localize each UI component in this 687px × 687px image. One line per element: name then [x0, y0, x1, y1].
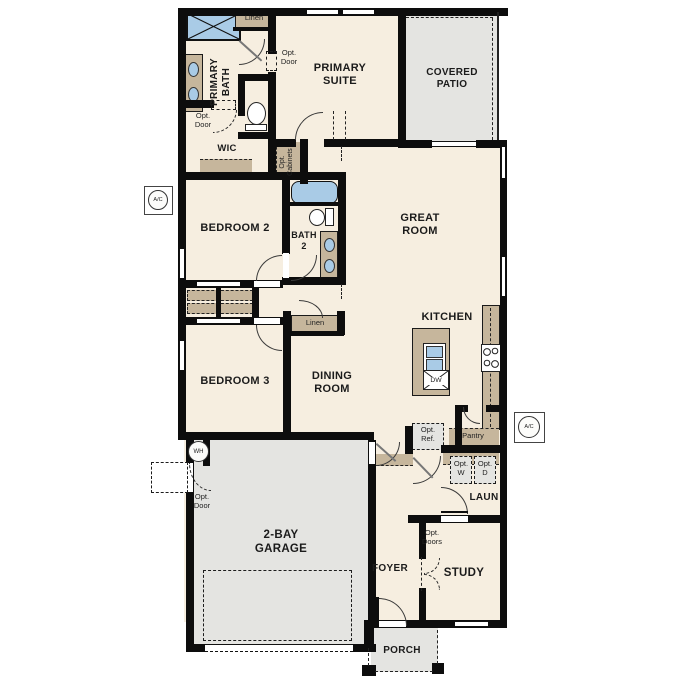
wall — [283, 311, 291, 432]
ac-icon: A/C — [148, 190, 168, 210]
wall — [364, 628, 374, 650]
room-label-kitchen: KITCHEN — [412, 311, 482, 324]
wall — [300, 139, 308, 184]
room-label-covered-patio: COVERED PATIO — [414, 67, 490, 91]
label-linen-top: Linen — [237, 14, 271, 23]
label-opt-ref: Opt. Ref. — [412, 426, 444, 443]
room-label-bedroom2: BEDROOM 2 — [188, 222, 282, 235]
door-opening — [283, 253, 289, 278]
garage-door-dashed — [205, 650, 353, 652]
room-label-wic: WIC — [205, 143, 249, 155]
room-label-garage: 2-BAY GARAGE — [244, 528, 318, 556]
closet-door-opening — [197, 281, 240, 287]
wall — [238, 132, 276, 139]
wall — [500, 140, 507, 628]
room-label-study: STUDY — [434, 566, 494, 580]
window — [455, 621, 488, 627]
label-opt-washer: Opt. W — [450, 460, 472, 477]
primary-toilet-bowl — [247, 102, 266, 125]
label-opt-dryer: Opt. D — [474, 460, 496, 477]
primary-toilet-tank — [245, 124, 267, 131]
window — [501, 147, 506, 178]
label-linen-hall: Linen — [293, 319, 337, 328]
bath2-sink-1 — [324, 238, 335, 252]
wall — [288, 202, 340, 206]
floor-plan: DW — [0, 0, 687, 687]
label-opt-door-bath: Opt. Door — [275, 49, 303, 66]
wic-shelf — [200, 159, 252, 172]
water-heater-icon: WH — [188, 441, 209, 462]
label-opt-doors-study: Opt. Doors — [417, 529, 447, 546]
label-opt-door-wic: Opt. Door — [188, 112, 218, 129]
wall — [268, 72, 276, 180]
wall — [398, 8, 406, 148]
patio-slider — [432, 141, 476, 147]
bath2-sink-2 — [324, 259, 335, 273]
primary-sink-1 — [188, 62, 199, 77]
wall — [286, 331, 344, 336]
wall — [178, 432, 374, 440]
wall — [486, 405, 500, 412]
porch-dashed-edge — [375, 670, 433, 672]
room-label-bath2: BATH 2 — [290, 230, 318, 252]
room-label-primary-suite: PRIMARY SUITE — [306, 62, 374, 89]
room-label-foyer: FOYER — [368, 563, 412, 575]
wall — [338, 172, 346, 285]
room-label-laundry: LAUN — [462, 492, 506, 504]
door-opening — [369, 442, 375, 464]
label-pantry: Pantry — [447, 432, 499, 441]
porch-dashed-edge — [368, 648, 370, 666]
opening-mark — [341, 146, 343, 161]
wall — [419, 588, 426, 621]
tub — [291, 181, 338, 204]
opt-door-dashed — [151, 462, 188, 493]
wall — [432, 663, 444, 674]
closet-door-opening — [197, 318, 240, 324]
wall — [368, 440, 376, 622]
wall — [178, 8, 186, 440]
porch-dashed-edge — [436, 630, 438, 664]
bath2-toilet-bowl — [309, 209, 325, 226]
wall — [398, 140, 432, 148]
window — [307, 9, 338, 15]
label-opt-cabinets: Opt. Cabinets — [279, 140, 297, 184]
wall — [216, 288, 221, 317]
wall — [178, 172, 346, 180]
wall — [233, 27, 275, 31]
window — [179, 341, 185, 370]
cooktop — [481, 344, 501, 372]
room-label-dining-room: DINING ROOM — [302, 370, 362, 397]
patio-edge — [497, 12, 499, 142]
garage-car-outline — [203, 570, 352, 641]
room-label-bedroom3: BEDROOM 3 — [188, 375, 282, 388]
door-opening — [254, 318, 280, 324]
opt-opening-dashed — [333, 111, 346, 140]
island-sink-basin — [426, 346, 443, 358]
window — [501, 257, 506, 296]
patio-dashed-edge — [406, 17, 493, 19]
patio-dashed-edge — [491, 18, 493, 140]
room-label-primary-bath: PRIMARY BATH — [209, 42, 235, 122]
wall — [282, 180, 290, 254]
dishwasher-label: DW — [426, 377, 446, 385]
wall — [324, 139, 400, 147]
wall — [441, 445, 506, 453]
ac-icon: A/C — [518, 416, 540, 438]
opening-mark — [341, 284, 343, 299]
wall — [362, 665, 376, 676]
window — [343, 9, 374, 15]
label-opt-door-garage: Opt. Door — [186, 493, 218, 510]
bath2-toilet-tank — [325, 208, 334, 226]
wall — [476, 140, 502, 148]
door-opening — [441, 516, 468, 522]
opt-doors-line — [421, 557, 423, 591]
door-opening — [254, 281, 280, 287]
front-door-leaf — [376, 597, 379, 627]
wall — [252, 288, 259, 317]
wall — [238, 74, 245, 116]
window — [179, 249, 185, 278]
room-label-porch: PORCH — [382, 645, 422, 657]
door-leaf — [441, 511, 468, 513]
room-label-great-room: GREAT ROOM — [384, 212, 456, 239]
